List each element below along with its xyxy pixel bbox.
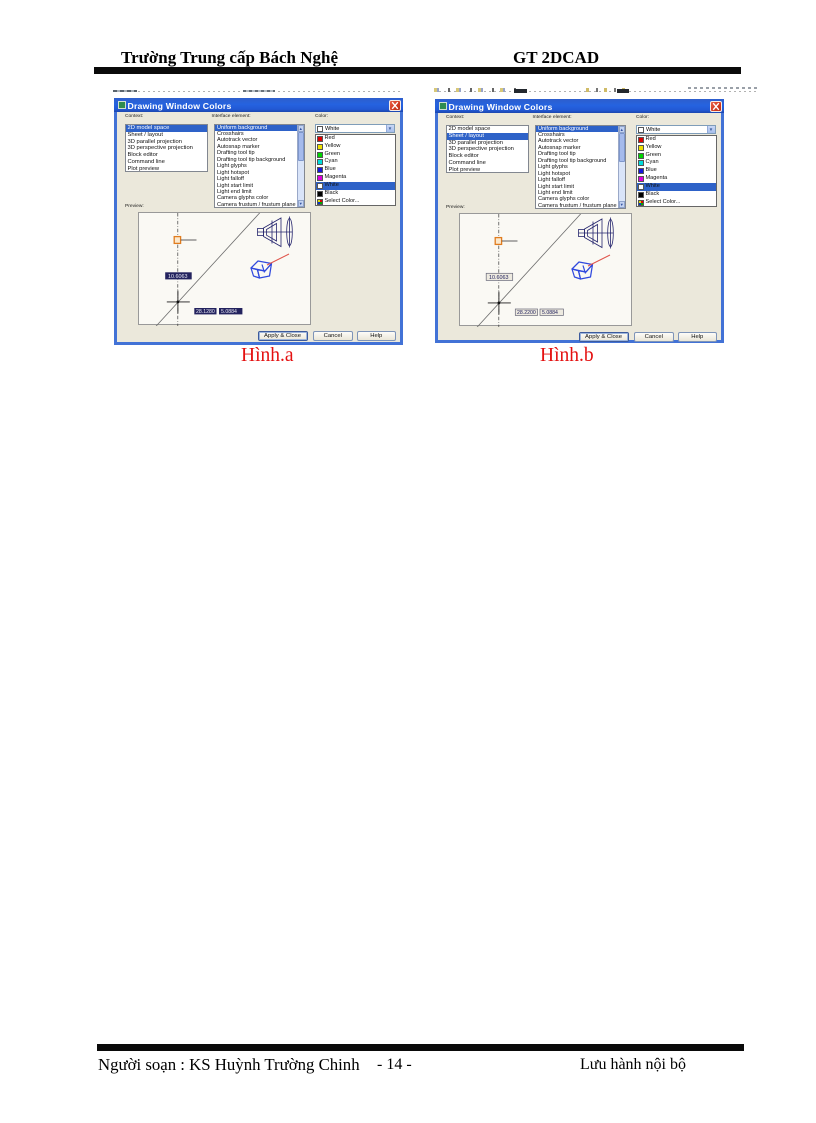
- svg-text:28.2200: 28.2200: [517, 310, 536, 316]
- svg-text:28.1280: 28.1280: [196, 309, 215, 315]
- svg-text:10.6063: 10.6063: [489, 275, 509, 281]
- svg-text:10.6063: 10.6063: [168, 274, 188, 280]
- svg-text:5.0884: 5.0884: [542, 310, 558, 316]
- svg-text:5.0884: 5.0884: [221, 309, 237, 315]
